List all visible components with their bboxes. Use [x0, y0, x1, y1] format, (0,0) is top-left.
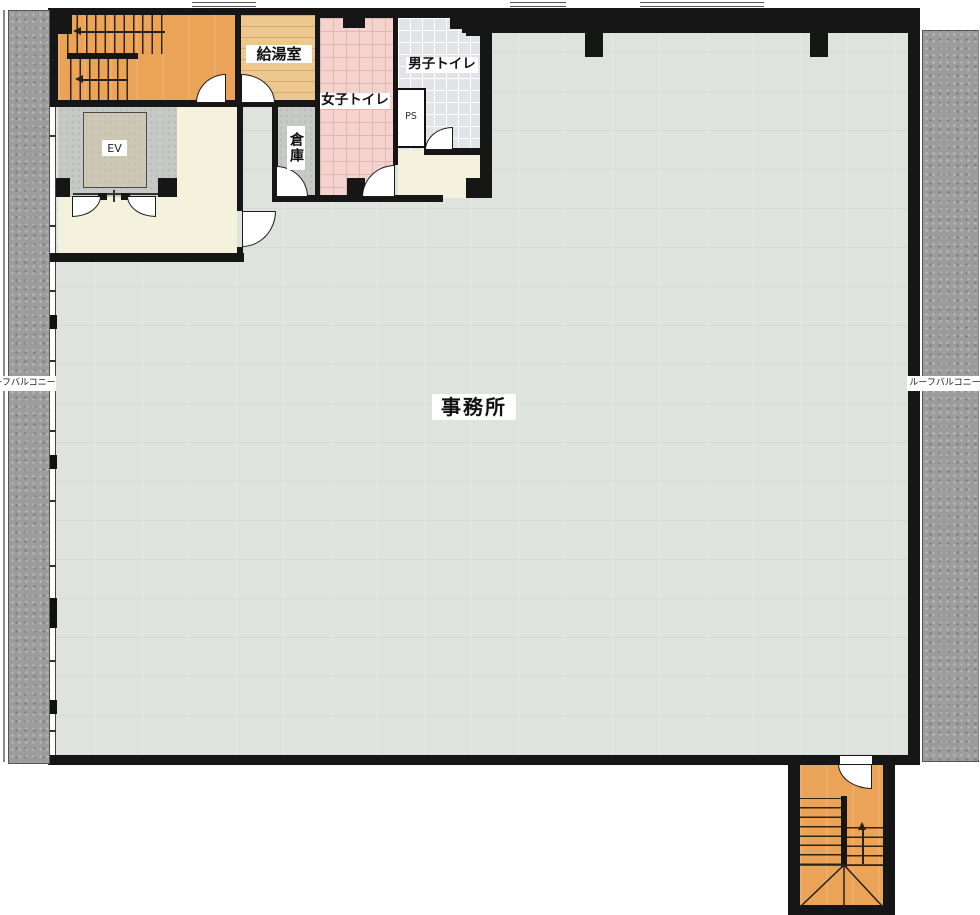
column — [810, 33, 828, 57]
room-label-mens-toilet: 男子トイレ — [406, 57, 478, 73]
window-symbol — [640, 2, 764, 7]
column — [55, 178, 70, 197]
column — [158, 178, 177, 197]
arrow-head-icon — [75, 75, 83, 83]
stair-winder-lines — [800, 865, 883, 907]
room-label-storage: 倉庫 — [287, 126, 305, 170]
room-label-elevator: EV — [102, 140, 127, 156]
elevator-door-sill — [73, 193, 158, 195]
stair-direction-arrow — [80, 31, 165, 33]
column — [585, 33, 603, 57]
floor-plan: 給湯室 女子トイレ 男子トイレ PS 倉庫 EV 事務所 ルーフバルコニー ルー… — [0, 0, 980, 915]
wall-segment — [462, 8, 920, 33]
label-roof-balcony-right: ルーフバルコニー — [907, 376, 980, 391]
label-roof-balcony-left: ルーフバルコニー — [0, 376, 56, 391]
wall-segment — [48, 253, 244, 262]
wall-segment — [883, 757, 895, 915]
room-label-office: 事務所 — [432, 394, 516, 420]
stair-treads-upper-flight — [67, 15, 170, 54]
wall-segment — [237, 107, 243, 211]
arrow-head-icon — [858, 822, 866, 830]
room-label-kitchenette: 給湯室 — [246, 45, 312, 63]
wall-segment — [480, 8, 492, 198]
room-label-womens-toilet: 女子トイレ — [320, 93, 390, 109]
wall-segment — [48, 100, 320, 107]
column — [343, 15, 365, 28]
wall-segment — [398, 195, 443, 202]
balcony-outline — [978, 30, 979, 760]
column — [466, 178, 492, 198]
stair-treads-left-flight — [800, 798, 841, 865]
elevator-center-mark — [113, 190, 115, 202]
wall-segment — [788, 757, 800, 915]
roof-balcony-right — [922, 30, 979, 762]
stair-direction-arrow — [82, 79, 128, 81]
stair-direction-arrow — [862, 828, 864, 864]
room-label-pipe-space: PS — [400, 110, 422, 124]
wall-segment — [48, 8, 320, 15]
window-symbol — [510, 2, 566, 7]
window-symbol — [192, 2, 256, 7]
arrow-head-icon — [73, 27, 81, 35]
